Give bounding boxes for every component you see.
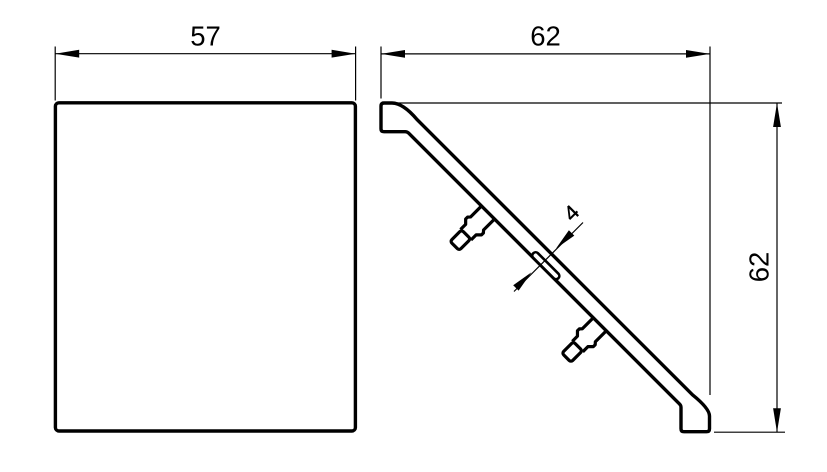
svg-text:57: 57 xyxy=(190,20,221,51)
svg-text:62: 62 xyxy=(744,252,775,283)
svg-text:62: 62 xyxy=(530,20,561,51)
